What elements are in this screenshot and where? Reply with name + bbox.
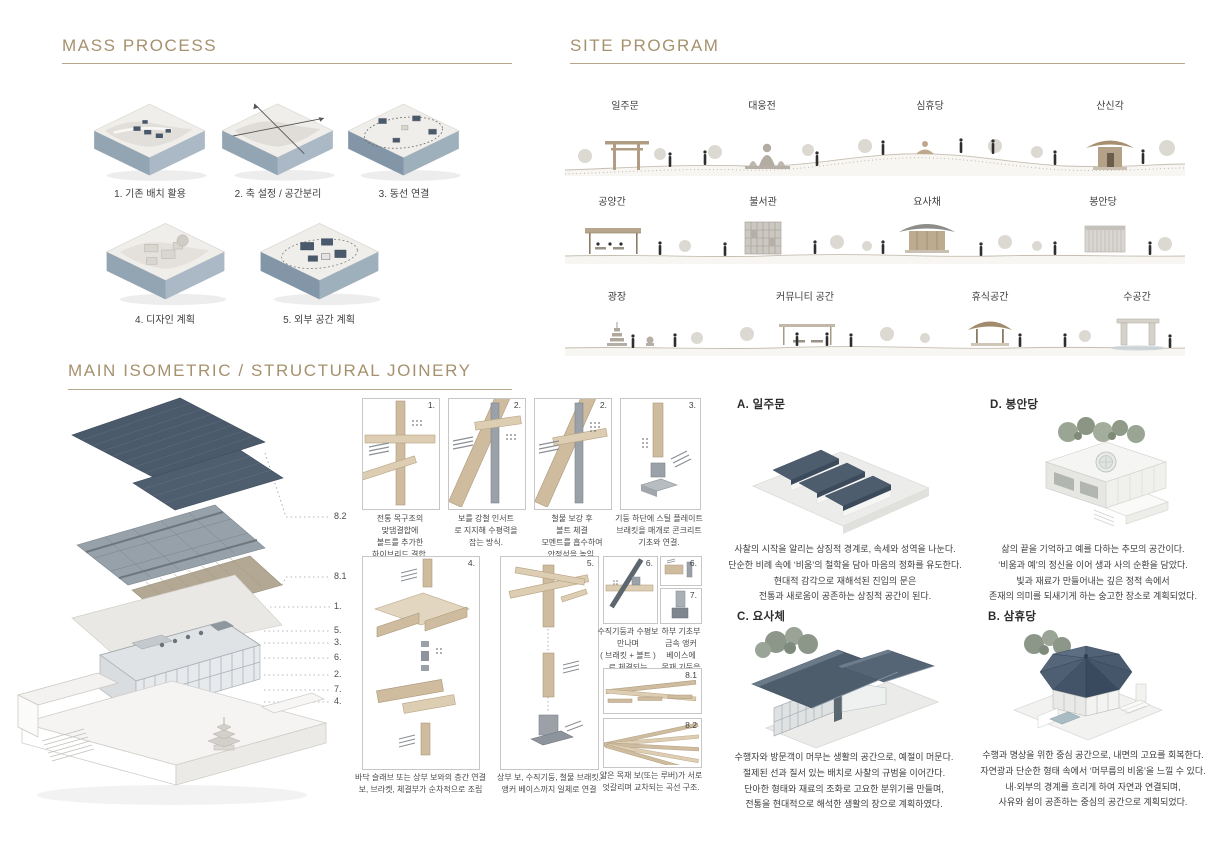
building-a-title: A. 일주문 — [737, 396, 785, 412]
axon-label-6: 6. — [334, 652, 342, 662]
joint-detail-3-icon — [535, 399, 609, 507]
building-c-yosachae-model — [738, 624, 943, 749]
mass-diagram-1-existing-layout-icon — [87, 92, 212, 184]
axon-label-1: 1. — [334, 601, 342, 611]
joint-detail-2-icon — [449, 399, 523, 507]
base-platform — [18, 673, 326, 785]
joinery-panel-7: 6. — [603, 556, 658, 624]
mass-diagram-4-design-icon — [98, 212, 233, 307]
joinery-panel-5: 4. — [362, 556, 480, 770]
axon-label-8-2: 8.2 — [334, 511, 347, 521]
joinery-caption-5: 바닥 슬래브 또는 상부 보와의 층간 연결 보, 브라켓, 체결부가 순차적으… — [348, 772, 493, 796]
mass-process-title: MASS PROCESS — [62, 36, 217, 56]
joint-detail-5-icon — [363, 557, 477, 767]
building-b-title: B. 삼휴당 — [988, 608, 1036, 624]
main-section-rule — [68, 389, 512, 390]
torii-gate-icon — [605, 141, 649, 170]
site-row-2-illustration — [565, 204, 1185, 264]
joint-detail-4-icon — [621, 399, 698, 507]
joint-detail-1-icon — [363, 399, 437, 507]
mass-diagram-2-axis-icon — [215, 88, 340, 184]
building-d-bongandang-model — [998, 410, 1188, 538]
tree-cluster — [755, 627, 818, 658]
joinery-panel-11: 8.2 — [603, 718, 702, 768]
mass-label-3: 3. 동선 연결 — [379, 185, 430, 200]
mass-process-rule — [62, 63, 512, 64]
building-b-description: 수행과 명상을 위한 중심 공간으로, 내면의 고요를 회복한다. 자연광과 단… — [962, 748, 1224, 811]
axon-label-2: 2. — [334, 669, 342, 679]
joinery-panel-1: 1. — [362, 398, 440, 510]
mass-diagram-3-circulation-icon — [341, 92, 466, 184]
traditional-house-icon — [899, 224, 955, 253]
joinery-panel-8: 6. — [660, 556, 702, 586]
building-a-iljumun-model — [745, 414, 935, 539]
dining-canopy-icon — [585, 228, 641, 254]
rest-pavilion-icon — [968, 322, 1012, 347]
axon-label-5: 5. — [334, 625, 342, 635]
joinery-panel-6: 5. — [500, 556, 599, 770]
book-hall-icon — [745, 222, 781, 254]
roof-garden-trees — [1058, 417, 1145, 443]
louvered-charnel-hall-icon — [1085, 226, 1125, 252]
mass-label-1: 1. 기존 배치 활용 — [114, 185, 186, 200]
joinery-caption-1: 전통 목구조의 맞댐결합에 볼트를 추가한 하이브리드 결합. — [350, 513, 450, 561]
joinery-panel-4: 3. — [620, 398, 701, 510]
meditating-figure-icon — [916, 141, 934, 154]
mass-label-5: 5. 외부 공간 계획 — [283, 311, 355, 326]
buddha-statue-icon — [745, 144, 790, 169]
building-a-description: 사찰의 시작을 알리는 상징적 경계로, 속세와 성역을 나눈다. 단순한 비례… — [714, 542, 976, 605]
site-row-1-illustration — [565, 108, 1185, 176]
mass-diagram-5-exterior-icon — [252, 212, 387, 307]
joinery-caption-8: 얇은 목재 보(또는 루버)가 서로 엇갈리며 교차되는 곡선 구조. — [592, 770, 710, 794]
stone-pagoda-icon — [607, 322, 654, 346]
site-program-rule — [570, 63, 1185, 64]
joinery-panel-9: 7. — [660, 588, 702, 624]
axon-label-8-1: 8.1 — [334, 571, 347, 581]
joint-detail-6-icon — [501, 557, 596, 767]
main-section-title: MAIN ISOMETRIC / STRUCTURAL JOINERY — [68, 361, 472, 381]
joinery-caption-5b: 상부 보, 수직기둥, 철물 브래킷, 앵커 베이스까지 일체로 연결 — [494, 772, 604, 796]
building-c-description: 수행자와 방문객이 머무는 생활의 공간으로, 예절이 머문다. 절제된 선과 … — [706, 750, 982, 813]
site-program-title: SITE PROGRAM — [570, 36, 720, 56]
mass-label-2: 2. 축 설정 / 공간분리 — [235, 185, 322, 200]
joinery-panel-10: 8.1 — [603, 668, 702, 714]
joinery-caption-4: 기둥 하단에 스틸 플레이트 브래킷을 매개로 콘크리트 기초와 연결. — [606, 513, 712, 549]
axon-label-3: 3. — [334, 637, 342, 647]
building-d-description: 삶의 끝을 기억하고 예를 다하는 추모의 공간이다. ‘비움과 예’의 정신을… — [968, 542, 1218, 605]
building-c-title: C. 요사체 — [737, 608, 785, 624]
joinery-panel-3: 2. — [534, 398, 612, 510]
presentation-board: MASS PROCESS — [0, 0, 1231, 868]
building-b-samhyudang-model — [998, 624, 1178, 750]
site-row-3-illustration — [565, 298, 1185, 356]
joinery-panel-2: 2. — [448, 398, 526, 510]
exploded-isometric-drawing — [12, 393, 334, 828]
mass-label-4: 4. 디자인 계획 — [135, 311, 195, 326]
axon-label-4: 4. — [334, 696, 342, 706]
water-gate-icon — [1111, 319, 1165, 351]
joinery-caption-2: 보를 강철 인서트 로 지지해 수평력을 잡는 방식. — [436, 513, 536, 549]
axon-label-7: 7. — [334, 684, 342, 694]
